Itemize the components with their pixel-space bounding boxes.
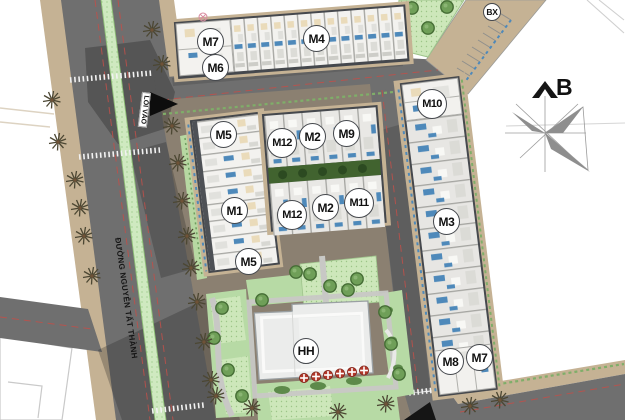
neighbour-buildings [0, 336, 72, 420]
label-m9: M9 [333, 120, 360, 147]
label-m12-lower: M12 [277, 200, 307, 230]
label-m8: M8 [437, 348, 464, 375]
label-m10: M10 [417, 89, 447, 119]
label-m1: M1 [221, 197, 248, 224]
label-m7-south: M7 [466, 344, 493, 371]
label-bx: BX [483, 3, 501, 21]
label-m6: M6 [202, 54, 229, 81]
label-m7-north: M7 [197, 28, 224, 55]
label-m11: M11 [344, 188, 374, 218]
label-m12-upper: M12 [267, 128, 297, 158]
north-label: B [556, 74, 573, 101]
label-m5-lower: M5 [235, 248, 262, 275]
label-m5-upper: M5 [210, 121, 237, 148]
label-m2-lower: M2 [312, 194, 339, 221]
label-m2-upper: M2 [299, 123, 326, 150]
site-master-plan: ĐƯỜNG NGUYỄN TẤT THÀNH LỐI VÀO B M7 M6 M… [0, 0, 625, 420]
label-m4: M4 [303, 25, 330, 52]
label-m3: M3 [433, 208, 460, 235]
label-hh: HH [293, 338, 319, 364]
